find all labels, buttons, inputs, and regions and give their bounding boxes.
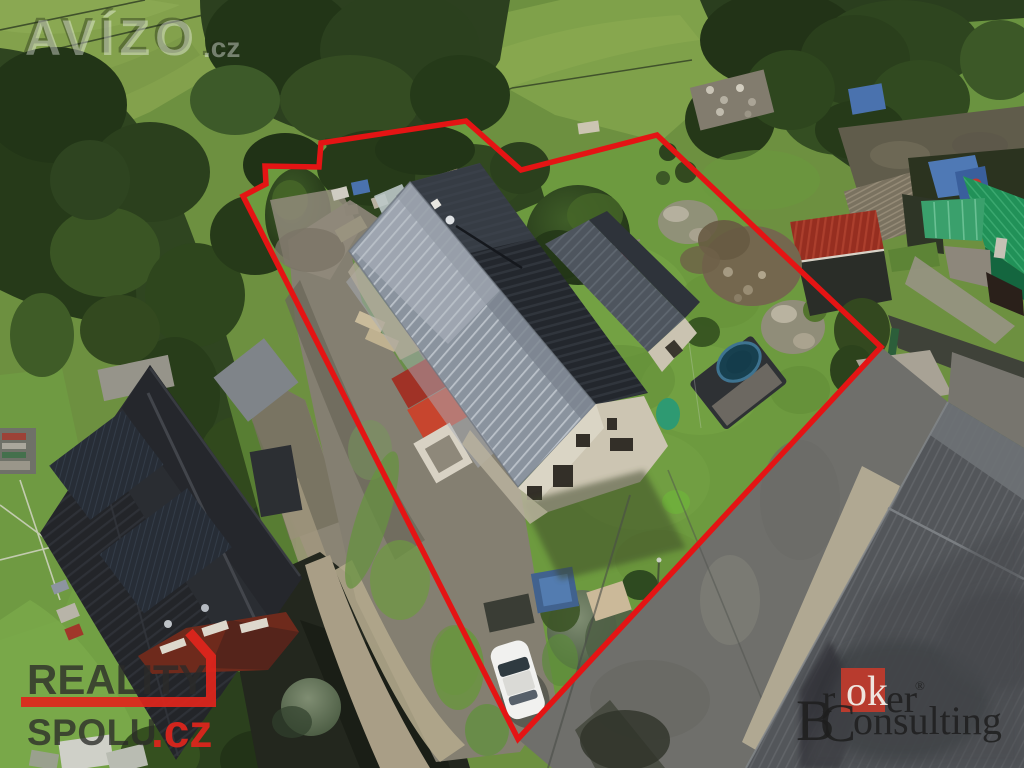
svg-text:REALITY: REALITY (27, 656, 207, 703)
svg-text:®: ® (915, 678, 925, 693)
svg-text:.cz: .cz (151, 705, 212, 757)
svg-text:SPOLU: SPOLU (27, 712, 157, 753)
svg-text:.cz: .cz (203, 32, 240, 63)
svg-text:C: C (820, 693, 856, 753)
svg-text:onsulting: onsulting (853, 698, 1002, 743)
svg-text:AVÍZO: AVÍZO (25, 10, 199, 66)
